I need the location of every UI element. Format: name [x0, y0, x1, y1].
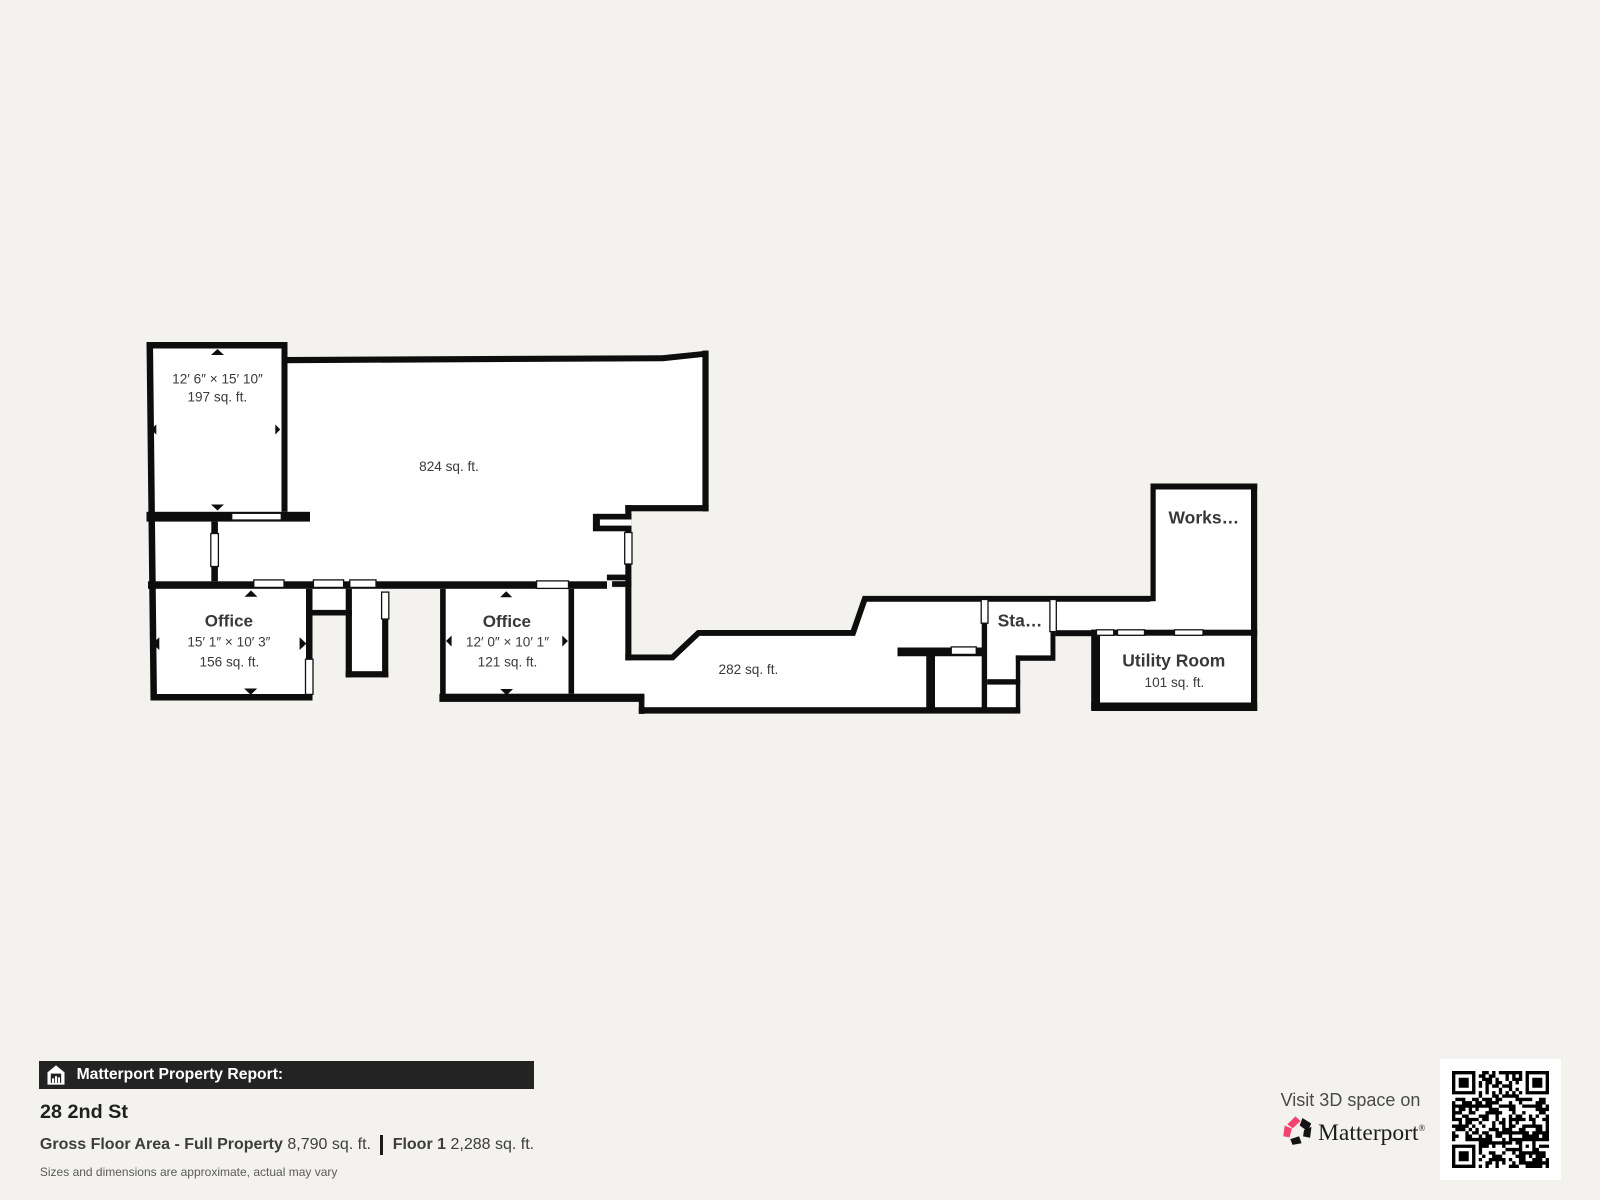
svg-text:282 sq. ft.: 282 sq. ft. [719, 662, 779, 677]
svg-text:156 sq. ft.: 156 sq. ft. [200, 654, 260, 669]
svg-text:824 sq. ft.: 824 sq. ft. [419, 459, 479, 474]
svg-text:12′ 6″ × 15′ 10″: 12′ 6″ × 15′ 10″ [172, 371, 263, 386]
svg-text:101 sq. ft.: 101 sq. ft. [1145, 675, 1205, 690]
svg-text:Sta…: Sta… [998, 611, 1043, 631]
svg-text:Office: Office [205, 612, 253, 631]
svg-text:121 sq. ft.: 121 sq. ft. [478, 654, 538, 669]
svg-text:Office: Office [483, 612, 531, 631]
svg-text:Works…: Works… [1168, 508, 1239, 528]
svg-text:15′ 1″ × 10′ 3″: 15′ 1″ × 10′ 3″ [187, 634, 270, 649]
svg-text:197 sq. ft.: 197 sq. ft. [187, 390, 247, 405]
svg-text:12′ 0″ × 10′ 1″: 12′ 0″ × 10′ 1″ [466, 634, 549, 649]
svg-text:Utility Room: Utility Room [1122, 651, 1225, 671]
